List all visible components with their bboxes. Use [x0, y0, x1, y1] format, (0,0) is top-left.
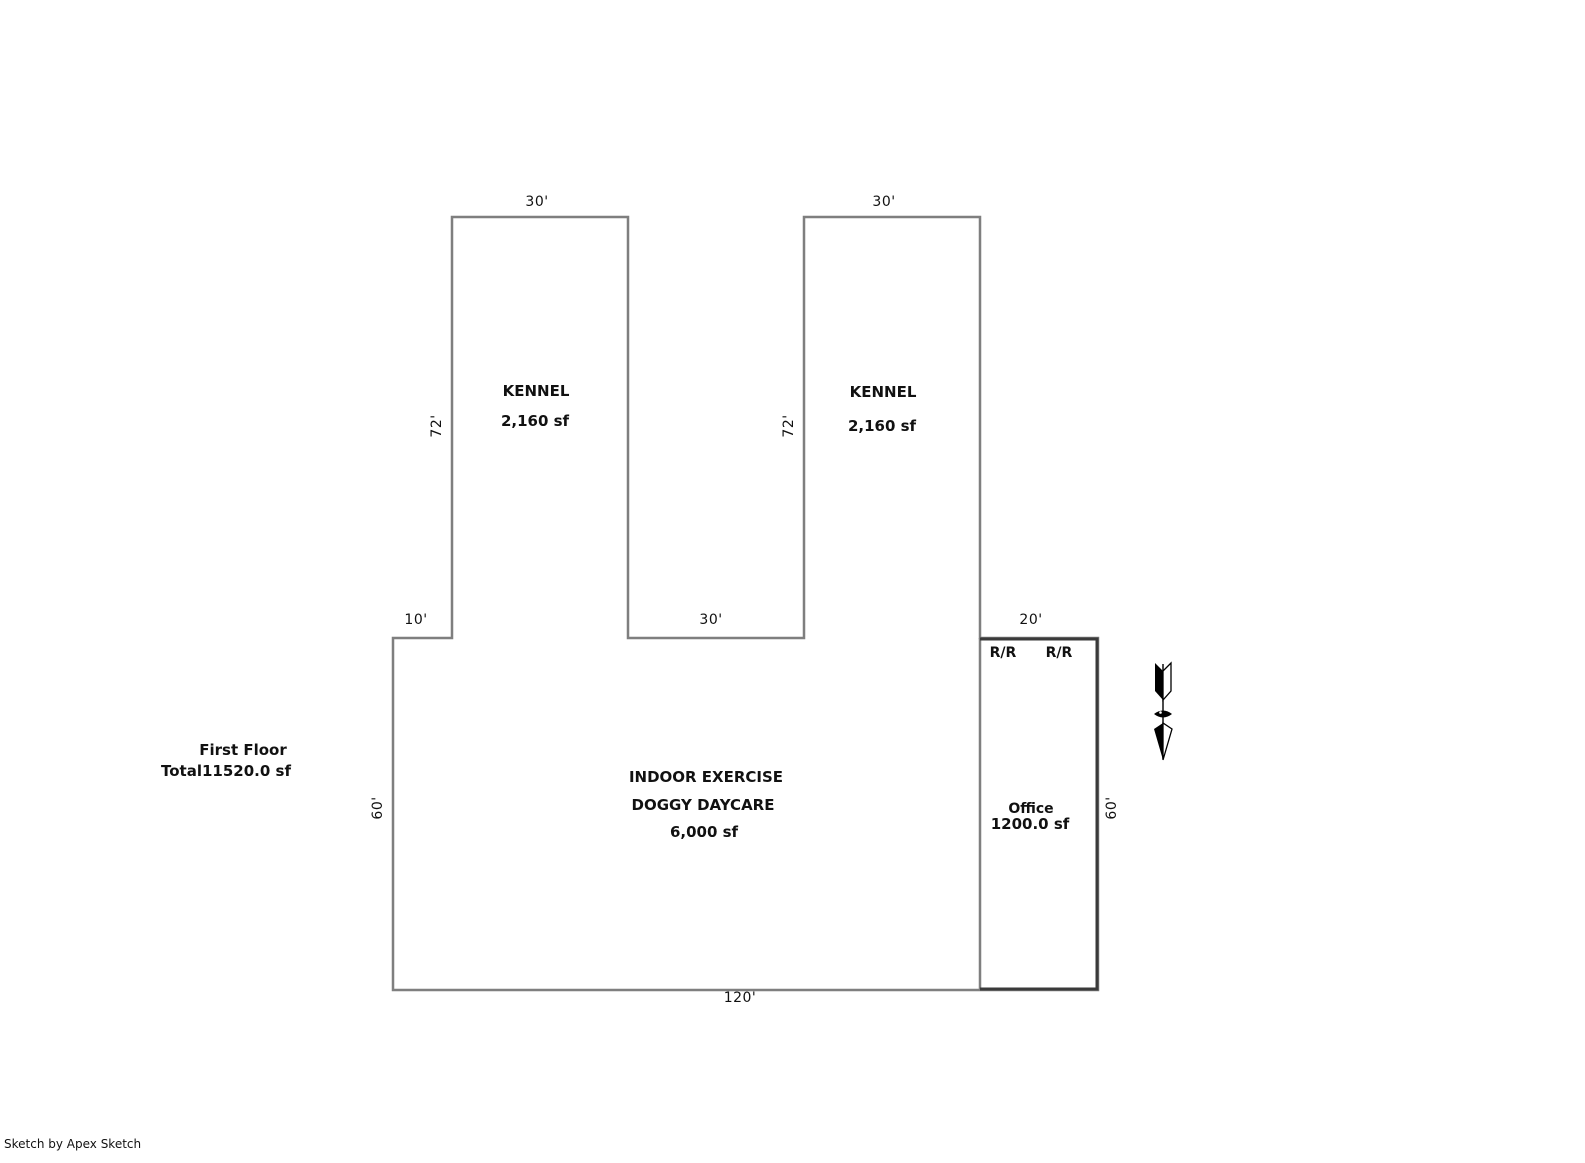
dim-office-width: 20' [1019, 612, 1042, 628]
north-arrow-icon [1154, 663, 1172, 760]
room-area-office: 1200.0 sf [991, 815, 1070, 833]
dim-kennel-right-width: 30' [872, 194, 895, 210]
dim-left-offset: 10' [404, 612, 427, 628]
room-area-kennel-left: 2,160 sf [501, 412, 569, 430]
dim-west-height: 60' [370, 796, 386, 819]
dim-kennel-left-height: 72' [429, 414, 445, 437]
summary-floor-total: Total11520.0 sf [161, 762, 291, 780]
room-label-exercise-line2: DOGGY DAYCARE [632, 796, 775, 814]
room-label-restroom-left: R/R [990, 645, 1017, 661]
floorplan-sketch-page: 30' 30' 72' 72' 10' 30' 20' 60' 60' 120'… [0, 0, 1585, 1163]
dim-south-width: 120' [724, 990, 757, 1006]
room-label-exercise-line1: INDOOR EXERCISE [629, 768, 783, 786]
floorplan-drawing [0, 0, 1585, 1163]
room-area-kennel-right: 2,160 sf [848, 417, 916, 435]
dim-kennel-right-height: 72' [781, 414, 797, 437]
dim-east-height: 60' [1104, 796, 1120, 819]
room-label-restroom-right: R/R [1046, 645, 1073, 661]
dim-center-gap: 30' [699, 612, 722, 628]
summary-floor-name: First Floor [199, 741, 287, 759]
dim-kennel-left-width: 30' [525, 194, 548, 210]
room-label-kennel-right: KENNEL [850, 383, 917, 401]
floorplan-outline [393, 217, 1098, 990]
sketch-credit: Sketch by Apex Sketch [4, 1137, 141, 1151]
room-area-exercise: 6,000 sf [670, 823, 738, 841]
room-label-kennel-left: KENNEL [503, 382, 570, 400]
